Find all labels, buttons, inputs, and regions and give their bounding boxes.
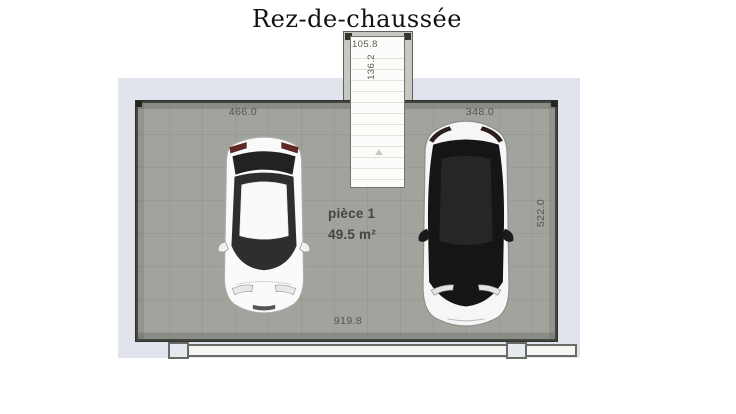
stair-direction-arrow-icon [375, 149, 383, 155]
white-car-icon[interactable] [216, 134, 312, 314]
pillar [168, 342, 189, 359]
dimension-top-right-wall: 348.0 [430, 106, 530, 118]
dimension-top-left-wall: 466.0 [193, 106, 293, 118]
wall-corner-post [404, 33, 411, 40]
roof [240, 182, 289, 239]
black-car-icon[interactable] [414, 118, 518, 328]
dimension-right-wall: 522.0 [535, 183, 551, 243]
wall-corner-post [551, 101, 557, 107]
dimension-bottom-wall: 919.8 [298, 315, 398, 327]
floor-plan-view: Rez-de-chaussée 105.8 136.2 466.0 348.0 … [0, 0, 736, 414]
plan-title: Rez-de-chaussée [0, 5, 714, 33]
room-label[interactable]: pièce 1 49.5 m² [328, 203, 376, 245]
room-name: pièce 1 [328, 203, 376, 224]
glass-roof [439, 156, 492, 245]
wall-corner-post [136, 101, 142, 107]
room-area: 49.5 m² [328, 224, 376, 245]
pillar [506, 342, 527, 359]
dimension-stair-depth: 136.2 [366, 46, 380, 88]
